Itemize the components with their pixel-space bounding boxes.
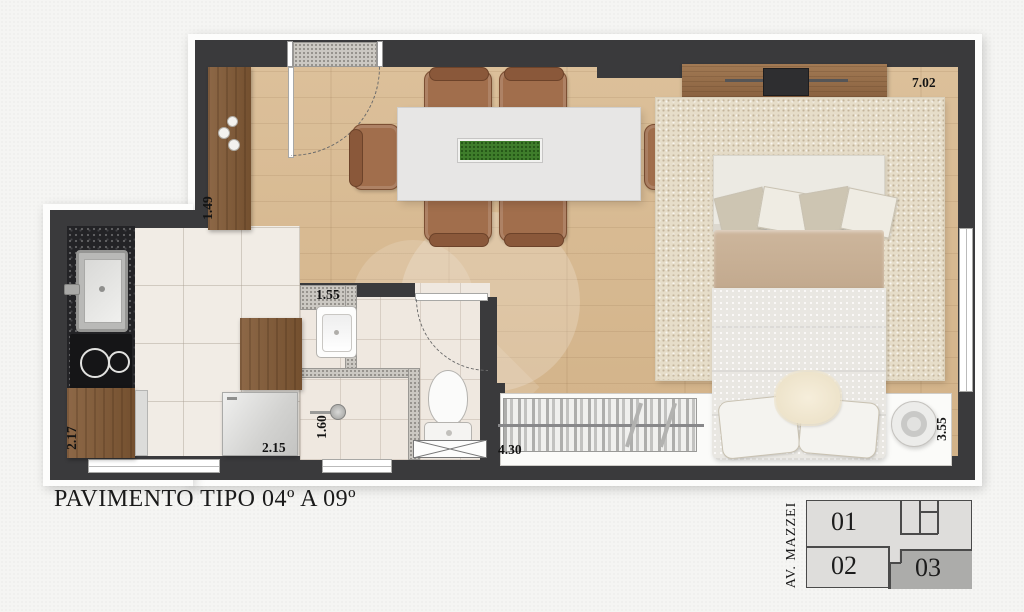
key-plan-line xyxy=(889,562,901,564)
key-plan-unit-label: 03 xyxy=(915,555,941,581)
key-plan-line xyxy=(937,501,939,534)
fur-throw-pillow xyxy=(776,372,840,424)
window-kitchen xyxy=(88,459,220,473)
decor-tray xyxy=(891,401,937,447)
chair-back xyxy=(504,233,564,247)
key-plan-line xyxy=(919,501,921,534)
key-plan-line xyxy=(919,511,938,513)
kitchen-faucet xyxy=(64,284,80,295)
key-plan-unit-label: 02 xyxy=(831,553,857,579)
floorplan-canvas: 7.02 1.49 1.55 1.60 2.17 2.15 4.30 3.55 … xyxy=(0,0,1024,612)
chair-back xyxy=(429,67,489,81)
key-plan-box: 01 02 03 xyxy=(806,500,972,588)
chair-back xyxy=(504,67,564,81)
window-bedroom-right xyxy=(959,228,973,392)
wall-column xyxy=(597,67,682,78)
window-glass-line xyxy=(89,466,219,467)
bed-blanket xyxy=(714,230,884,290)
toilet-flush-button xyxy=(446,430,452,436)
key-plan-line xyxy=(900,549,902,563)
key-plan-line xyxy=(889,562,891,589)
key-plan-unit-label: 01 xyxy=(831,509,857,535)
toilet-bowl xyxy=(428,370,468,426)
street-label: AV. MAZZEI xyxy=(784,495,800,595)
fridge-handle xyxy=(227,397,237,400)
decor-plate xyxy=(218,127,230,139)
balcony-sliding-door xyxy=(503,398,697,452)
plant-centerpiece xyxy=(458,139,542,162)
refrigerator xyxy=(222,392,298,456)
key-plan-line xyxy=(900,549,972,551)
dim-label-kitchen-width: 2.15 xyxy=(262,441,286,455)
burner xyxy=(80,348,110,378)
key-plan-line xyxy=(900,501,902,534)
entry-door-jamb xyxy=(377,41,383,67)
entry-threshold xyxy=(293,42,377,67)
dishwasher xyxy=(135,390,148,456)
key-plan: AV. MAZZEI 01 02 03 xyxy=(740,490,980,600)
window-bathroom xyxy=(322,459,392,473)
dim-label-bath-width: 1.55 xyxy=(316,288,340,302)
kitchen-sink xyxy=(76,250,128,332)
tray-center xyxy=(907,417,921,431)
dim-label-entry-cabinet: 1.49 xyxy=(201,196,215,220)
shower-curb xyxy=(300,368,420,378)
decor-plate xyxy=(228,139,240,151)
window-glass-line xyxy=(966,229,967,391)
sink-drain xyxy=(334,330,339,335)
sink-drain xyxy=(99,286,105,292)
burner xyxy=(108,351,130,373)
sliding-door-rail xyxy=(498,424,704,427)
dining-chair xyxy=(352,124,400,190)
dim-label-bedroom-depth: 3.55 xyxy=(935,417,949,441)
cooktop xyxy=(70,334,132,392)
key-plan-line xyxy=(900,533,938,535)
dim-label-living-top: 7.02 xyxy=(912,76,936,90)
decor-plate xyxy=(227,116,238,127)
plan-title: PAVIMENTO TIPO 04º A 09º xyxy=(54,486,356,513)
island-cabinet xyxy=(240,318,302,390)
chair-back xyxy=(429,233,489,247)
key-plan-line xyxy=(807,546,888,548)
shower-head xyxy=(330,404,346,420)
window-glass-line xyxy=(323,466,391,467)
chair-back xyxy=(349,129,363,187)
tv xyxy=(763,68,809,96)
bathroom-sink xyxy=(316,306,357,358)
dim-label-balcony-door: 4.30 xyxy=(498,443,522,457)
dim-label-shower-width: 1.60 xyxy=(315,415,329,439)
service-shaft xyxy=(413,440,487,458)
dim-label-kitchen-depth: 2.17 xyxy=(65,426,79,450)
